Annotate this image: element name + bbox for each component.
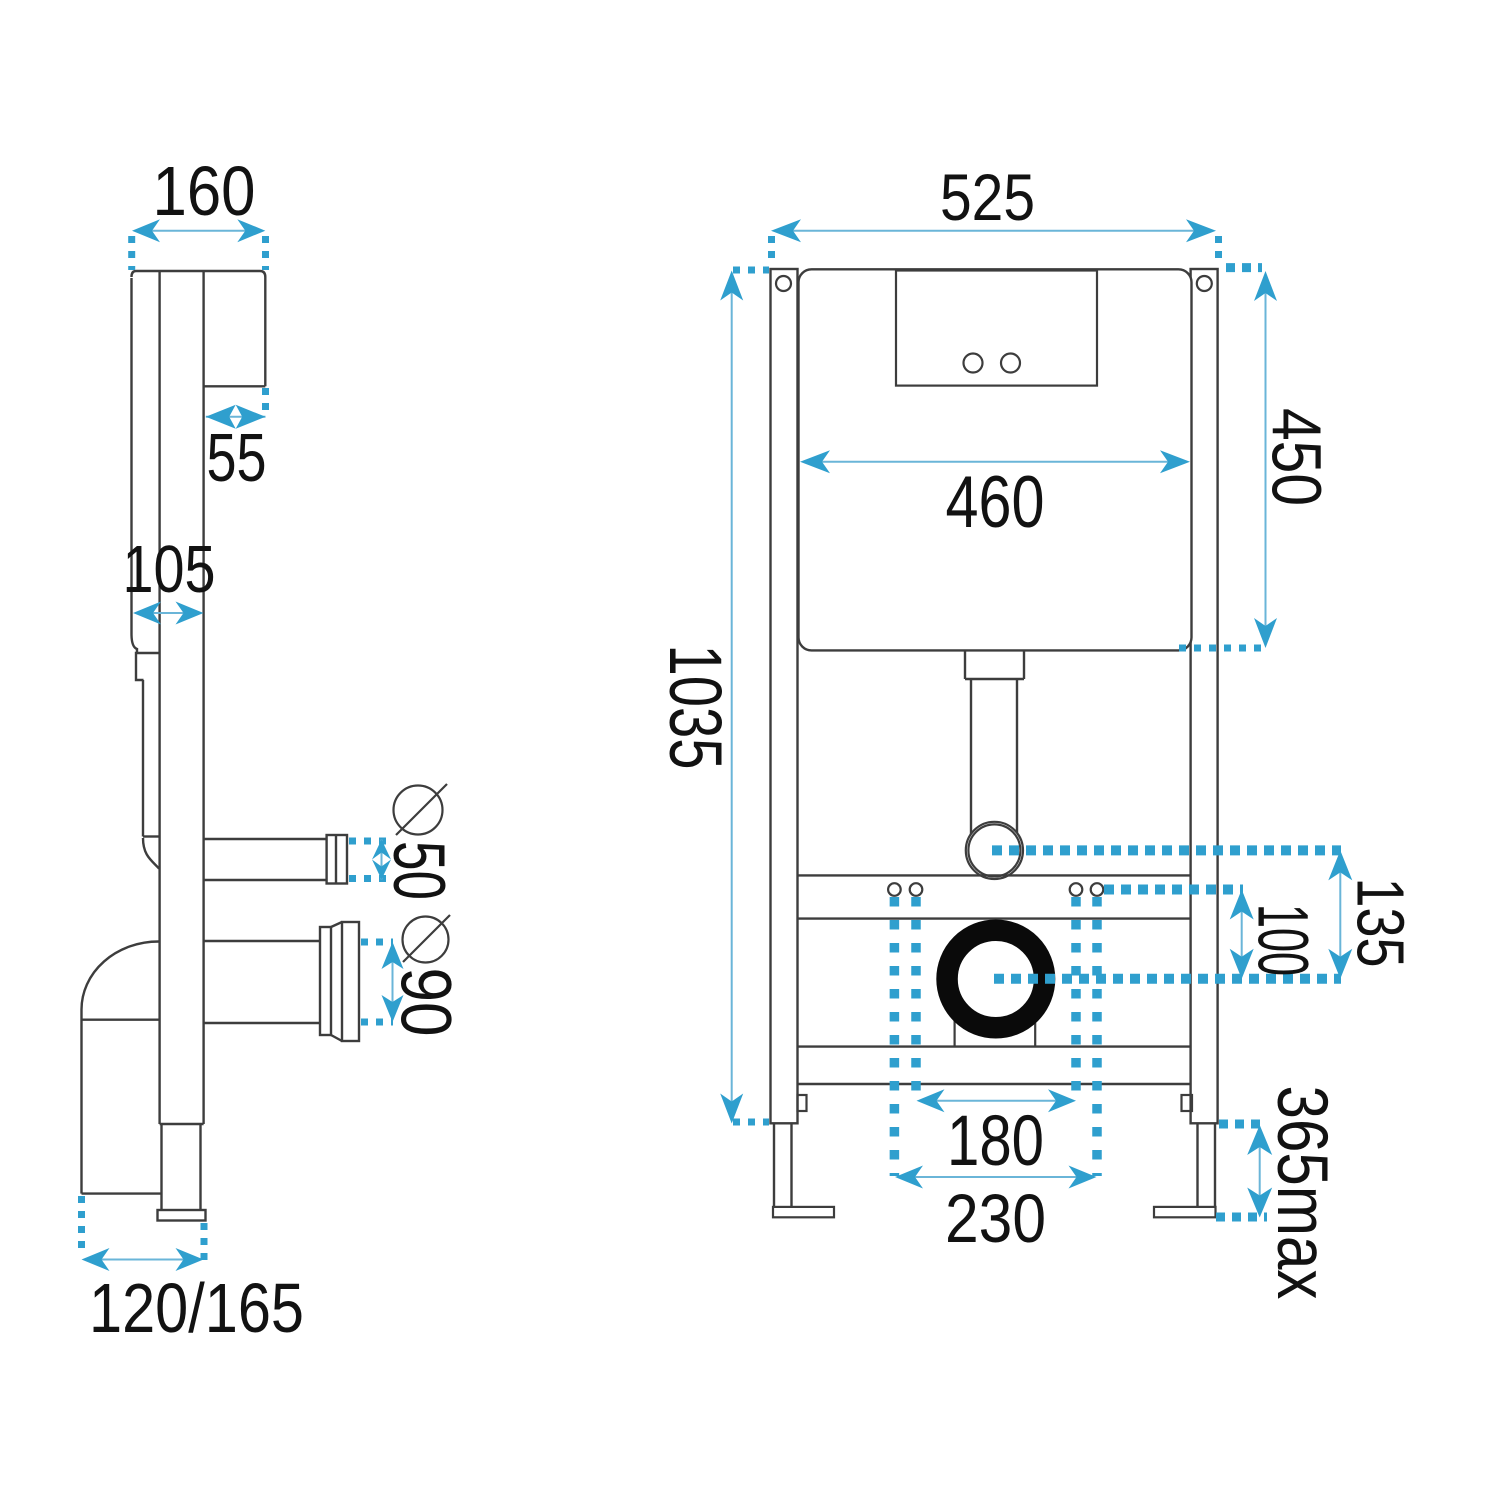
svg-text:160: 160 — [153, 152, 256, 230]
svg-text:105: 105 — [123, 532, 216, 607]
svg-text:120/165: 120/165 — [89, 1269, 304, 1347]
svg-text:135: 135 — [1343, 878, 1418, 968]
svg-text:460: 460 — [946, 462, 1045, 543]
svg-text:230: 230 — [945, 1180, 1046, 1257]
svg-text:50: 50 — [378, 841, 459, 900]
svg-text:180: 180 — [947, 1102, 1044, 1181]
svg-text:450: 450 — [1258, 408, 1336, 506]
svg-text:55: 55 — [207, 420, 267, 496]
svg-text:365max: 365max — [1262, 1086, 1341, 1300]
svg-text:1035: 1035 — [654, 645, 737, 770]
svg-text:525: 525 — [940, 160, 1035, 234]
svg-text:100: 100 — [1243, 904, 1322, 976]
